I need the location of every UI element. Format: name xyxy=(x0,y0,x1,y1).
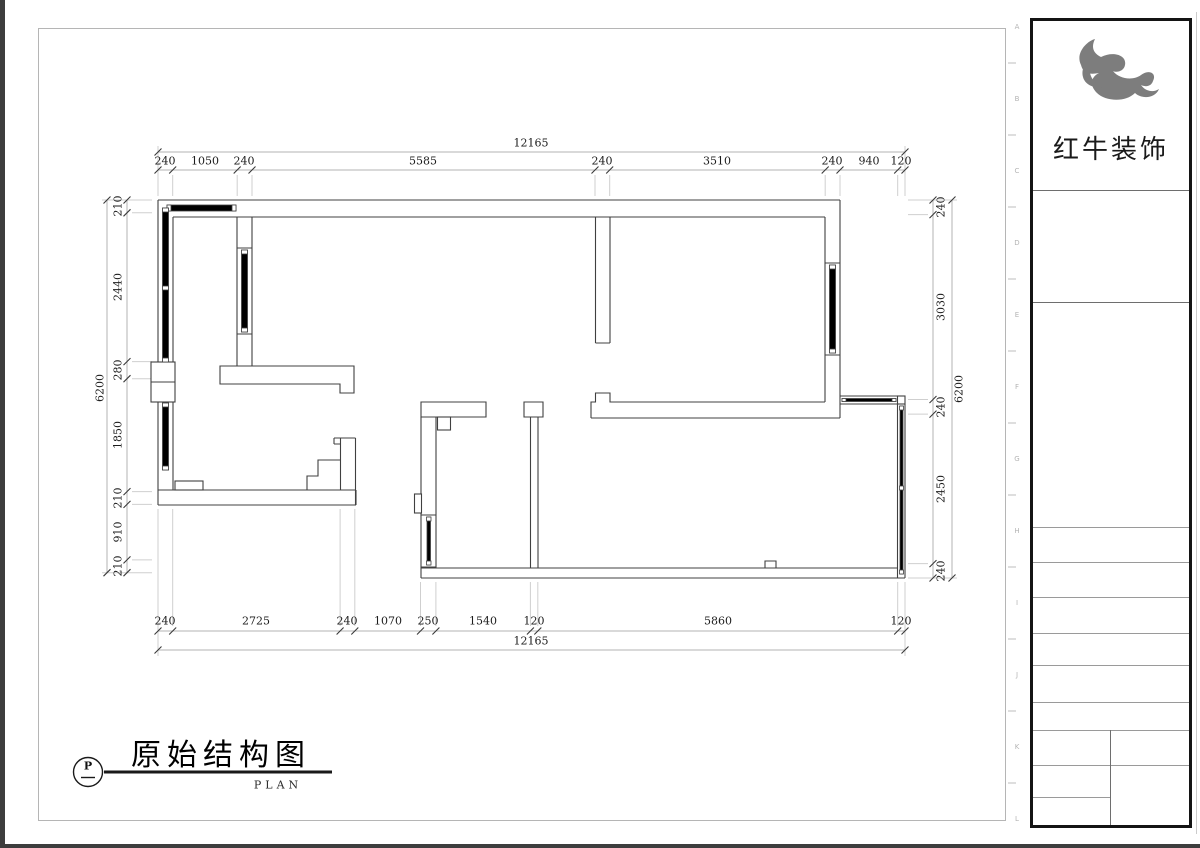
dim-label: 1850 xyxy=(113,421,124,449)
dim-label: 210 xyxy=(113,196,124,217)
dim-label: 1540 xyxy=(469,616,497,627)
windows xyxy=(163,205,904,574)
ruler-letter: C xyxy=(1015,167,1020,175)
ruler-letter: K xyxy=(1015,743,1020,751)
dim-label: 240 xyxy=(592,156,613,167)
sidebar-divider xyxy=(1033,730,1189,731)
dim-label: 280 xyxy=(113,360,124,381)
walls xyxy=(151,200,905,578)
sidebar-divider xyxy=(1033,797,1110,798)
dim-extension-lines xyxy=(102,146,957,656)
ruler-letter: D xyxy=(1014,239,1019,247)
dim-label: 5585 xyxy=(409,156,437,167)
dim-label: 210 xyxy=(113,488,124,509)
dim-label: 910 xyxy=(113,522,124,543)
brand-box: 红牛装饰 xyxy=(1033,21,1189,190)
dim-label: 240 xyxy=(155,616,176,627)
dim-label: 240 xyxy=(337,616,358,627)
dim-label: 940 xyxy=(859,156,880,167)
dim-label: 240 xyxy=(234,156,255,167)
dim-label: 2440 xyxy=(113,273,124,301)
sheet-title-strip: 红牛装饰 xyxy=(1030,18,1192,828)
floorplan-linework xyxy=(0,0,1200,848)
dim-label: 240 xyxy=(822,156,843,167)
ruler-letter: I xyxy=(1016,599,1018,607)
ruler-letter: J xyxy=(1016,671,1018,679)
ruler-letter: G xyxy=(1014,455,1019,463)
dim-label: 250 xyxy=(418,616,439,627)
dim-label: 3510 xyxy=(703,156,731,167)
sidebar-divider xyxy=(1033,527,1189,528)
dim-label: 3030 xyxy=(936,293,947,321)
page-title: 原始结构图 xyxy=(131,730,311,774)
page-edge-bars xyxy=(0,0,1200,848)
dim-label: 2725 xyxy=(242,616,270,627)
dim-total-left: 6200 xyxy=(95,374,106,402)
dim-total-right: 6200 xyxy=(954,375,965,403)
brand-logo-icon xyxy=(1061,35,1161,113)
ruler-letter: F xyxy=(1015,383,1019,391)
dim-label: 240 xyxy=(155,156,176,167)
dim-total-bottom: 12165 xyxy=(514,636,549,647)
sidebar-divider xyxy=(1033,665,1189,666)
ruler-letter: E xyxy=(1015,311,1019,319)
dim-label: 240 xyxy=(936,197,947,218)
dim-label: 120 xyxy=(891,156,912,167)
dim-label: 240 xyxy=(936,397,947,418)
sidebar-divider xyxy=(1033,633,1189,634)
cad-sheet: 12165 240 1050 240 5585 240 3510 240 940… xyxy=(0,0,1200,848)
ruler-letter: B xyxy=(1015,95,1020,103)
dim-label: 1070 xyxy=(374,616,402,627)
page-subtitle: PLAN xyxy=(254,779,302,792)
sidebar-vertical-divider xyxy=(1110,730,1111,825)
dim-label: 240 xyxy=(936,561,947,582)
ruler-letter: H xyxy=(1014,527,1019,535)
dim-label: 2450 xyxy=(936,475,947,503)
dim-label: 1050 xyxy=(191,156,219,167)
ruler-letter: L xyxy=(1015,815,1019,823)
sidebar-divider xyxy=(1033,765,1189,766)
plan-marker-letter: P xyxy=(84,760,92,773)
dim-total-top: 12165 xyxy=(514,138,549,149)
sidebar-divider xyxy=(1033,597,1189,598)
brand-name: 红牛装饰 xyxy=(1033,129,1189,166)
sidebar-divider xyxy=(1033,302,1189,303)
sidebar-divider xyxy=(1033,562,1189,563)
sidebar-divider xyxy=(1033,190,1189,191)
ruler-letter: A xyxy=(1015,23,1020,31)
dim-label: 210 xyxy=(113,556,124,577)
dim-label: 120 xyxy=(524,616,545,627)
sidebar-divider xyxy=(1033,702,1189,703)
dim-label: 5860 xyxy=(704,616,732,627)
dim-label: 120 xyxy=(891,616,912,627)
